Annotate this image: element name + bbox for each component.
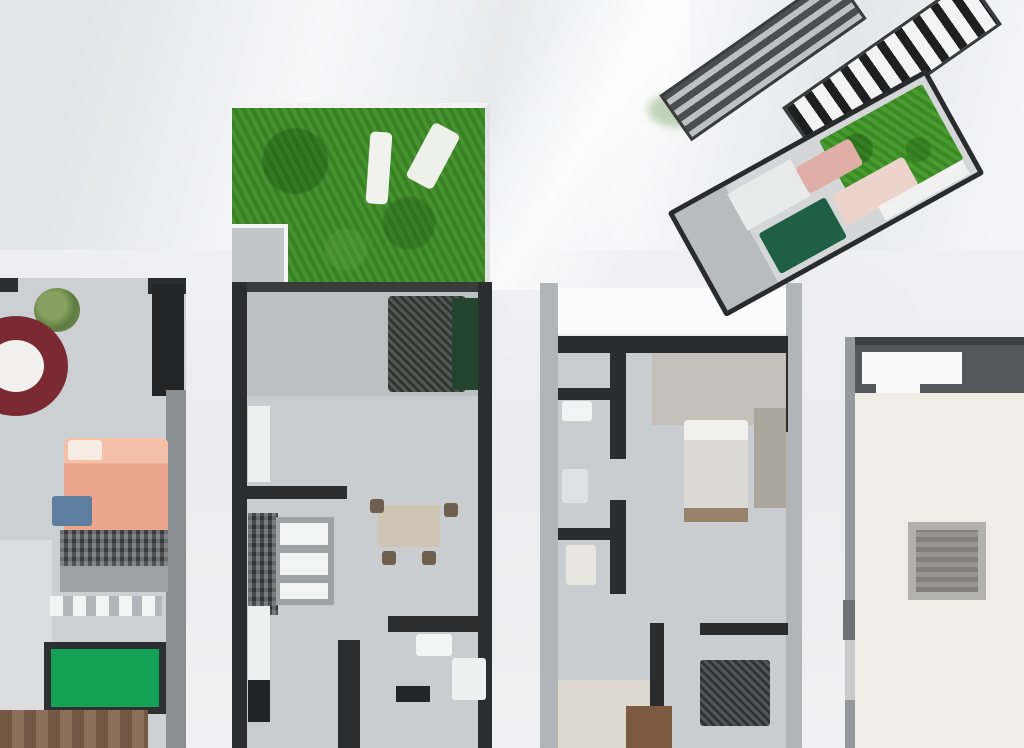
unit-2-kitchen-wall xyxy=(247,486,347,499)
unit-2-kitchen-cabinet-1 xyxy=(280,523,328,545)
unit-3-right-column xyxy=(786,283,802,748)
unit-3-brown-cabinet xyxy=(626,706,672,748)
unit-3-lower-wall-horizontal xyxy=(700,623,788,635)
unit-1-shelf-band xyxy=(60,566,168,592)
unit-2-kitchen-cabinet-3 xyxy=(280,583,328,599)
unit-1-closet-doors xyxy=(50,596,162,616)
unit-3-bath-fixture-2 xyxy=(562,469,588,503)
unit-3-left-column xyxy=(540,283,558,748)
unit-2-dining-chair-2 xyxy=(444,503,458,517)
unit-2-garden-patio xyxy=(232,224,288,285)
unit-4-rug-inner xyxy=(916,530,978,592)
unit-3-bed-bench xyxy=(684,508,748,522)
unit-2-left-wall xyxy=(232,282,247,748)
unit-3-wardrobe xyxy=(754,408,786,508)
unit-2-garden-wall xyxy=(232,282,492,292)
unit-2-hall-wall xyxy=(338,640,360,748)
unit-2-wardrobe xyxy=(248,606,270,680)
unit-3-mid-wall-left xyxy=(558,528,618,540)
unit-2-dining-chair-1 xyxy=(370,499,384,513)
unit-2-bath-sink xyxy=(416,634,452,656)
unit-2-bath-wall xyxy=(388,616,492,632)
isometric-3d-stack xyxy=(640,0,1024,285)
unit-1-top-wall-left xyxy=(0,278,18,292)
unit-4-door-gap xyxy=(845,640,855,700)
unit-3-bath-fixture-1 xyxy=(562,401,592,421)
unit-1-dresser xyxy=(60,530,168,566)
unit-4-rug xyxy=(908,522,986,600)
unit-2-dining-chair-4 xyxy=(422,551,436,565)
unit-1-bed-pillow xyxy=(68,440,102,460)
unit-2-bath-shower xyxy=(452,658,486,700)
unit-3-floorplan xyxy=(540,283,802,748)
unit-3-bath-wall-horizontal xyxy=(558,388,612,400)
unit-3-dark-dining-set xyxy=(700,660,770,726)
unit-1-pool-table xyxy=(44,642,166,714)
unit-3-bed-pillows xyxy=(684,420,748,440)
unit-2-dining-table xyxy=(378,505,440,547)
unit-2-bath-vanity xyxy=(396,686,430,702)
unit-4-window-notch xyxy=(876,380,920,394)
unit-2-dark-unit xyxy=(248,680,270,722)
unit-3-hall-wall-vertical xyxy=(610,500,626,594)
unit-3-bath-wall-vertical xyxy=(610,353,626,459)
unit-2-dining-chair-3 xyxy=(382,551,396,565)
unit-2-kitchen-cabinet-2 xyxy=(280,553,328,575)
unit-4-floorplan xyxy=(845,283,1024,748)
unit-1-wood-deck xyxy=(0,710,148,748)
unit-2-kitchen-counter xyxy=(248,513,278,615)
unit-1-right-wall-upper xyxy=(152,284,184,396)
unit-2-floorplan xyxy=(232,103,492,748)
unit-1-blue-cushion xyxy=(52,496,92,526)
unit-2-terrace-hedge xyxy=(452,298,478,390)
floorplan-render-image xyxy=(0,0,1024,748)
unit-2-tall-cabinet xyxy=(248,406,270,482)
unit-1-floorplan xyxy=(0,278,186,748)
unit-3-fixture-3 xyxy=(566,545,596,585)
unit-1-right-wall-lower xyxy=(166,390,186,748)
unit-1-pool-table-felt xyxy=(51,649,159,707)
unit-3-top-wall xyxy=(558,336,788,353)
